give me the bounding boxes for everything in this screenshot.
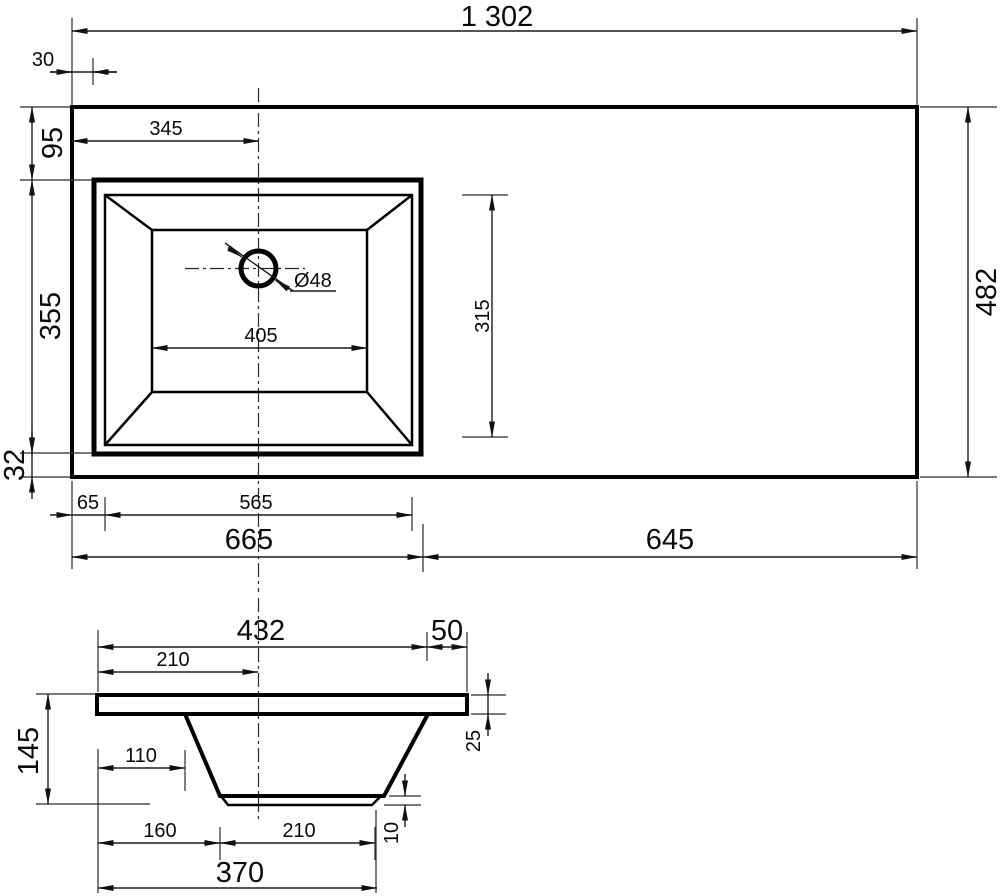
- dim-section-wall-offset: 110: [98, 745, 185, 893]
- dim-label-slab-thickness: 25: [463, 730, 485, 752]
- basin-floor: [152, 230, 367, 392]
- dim-rim-offset: 65: [50, 492, 105, 531]
- dim-label-bottom-span: 370: [216, 857, 264, 889]
- dim-label-basin-inner-depth: 315: [472, 299, 494, 332]
- dim-label-front-to-basin: 95: [37, 127, 69, 159]
- dim-slab-thickness: 25: [463, 673, 506, 752]
- dim-label-basin-outer-width: 565: [239, 492, 272, 514]
- dim-bottom-inset: 160: [98, 820, 220, 860]
- dim-label-bottom-width: 210: [282, 820, 315, 842]
- dim-basin-depth: 355: [20, 180, 93, 453]
- dim-basin-inner-depth: 315: [462, 195, 508, 437]
- dim-label-rim-offset: 65: [77, 492, 99, 514]
- plan-view: Ø48 1 302 30 345 95: [0, 1, 1000, 592]
- dim-lip-height: 10: [381, 774, 421, 844]
- dim-basin-floor-width: 405: [152, 325, 367, 348]
- dim-label-section-top-width: 432: [237, 615, 285, 647]
- basin-profile: [185, 714, 428, 796]
- dim-label-basin-floor-width: 405: [244, 325, 277, 347]
- dim-label-drain-diameter: Ø48: [294, 270, 332, 292]
- slab-profile: [97, 695, 467, 714]
- dim-label-basin-to-edge: 32: [0, 449, 31, 481]
- dim-label-edge-offset: 30: [32, 49, 54, 71]
- dim-center-from-left: 345: [72, 118, 259, 141]
- dim-label-overall-depth: 482: [971, 268, 1000, 316]
- countertop-outline: [72, 107, 917, 477]
- dim-label-section-overhang: 50: [431, 615, 463, 647]
- dim-overall-depth: 482: [920, 107, 1000, 477]
- dim-section-top-width: 432: [98, 615, 427, 692]
- dim-bottom-span: 370: [98, 810, 377, 893]
- dim-label-section-height: 145: [13, 727, 45, 775]
- dim-section-overhang: 50: [427, 615, 467, 692]
- dim-label-bottom-inset: 160: [143, 820, 176, 842]
- dim-label-section-wall-offset: 110: [125, 745, 157, 767]
- dim-right-section: 645: [423, 481, 917, 569]
- dim-label-basin-depth: 355: [35, 292, 67, 340]
- dim-basin-to-edge: 32: [0, 431, 70, 499]
- technical-drawing-page: Ø48 1 302 30 345 95: [0, 0, 1000, 896]
- dim-label-center-from-left: 345: [149, 118, 182, 140]
- dim-label-lip-height: 10: [381, 822, 403, 844]
- dim-bottom-width: 210: [220, 820, 375, 860]
- dim-label-left-section: 665: [225, 524, 273, 556]
- dim-label-overall-width: 1 302: [461, 1, 534, 33]
- washbasin-drawing: Ø48 1 302 30 345 95: [0, 0, 1000, 896]
- dim-section-center-offset: 210: [98, 649, 258, 672]
- dim-label-right-section: 645: [646, 524, 694, 556]
- dim-front-to-basin: 95: [20, 107, 93, 180]
- section-view: 432 50 210 145 25: [13, 598, 506, 893]
- dim-label-section-center-offset: 210: [156, 649, 189, 671]
- basin-outer-rim: [94, 180, 421, 454]
- dim-edge-offset: 30: [32, 49, 117, 85]
- dim-overall-width: 1 302: [72, 1, 917, 106]
